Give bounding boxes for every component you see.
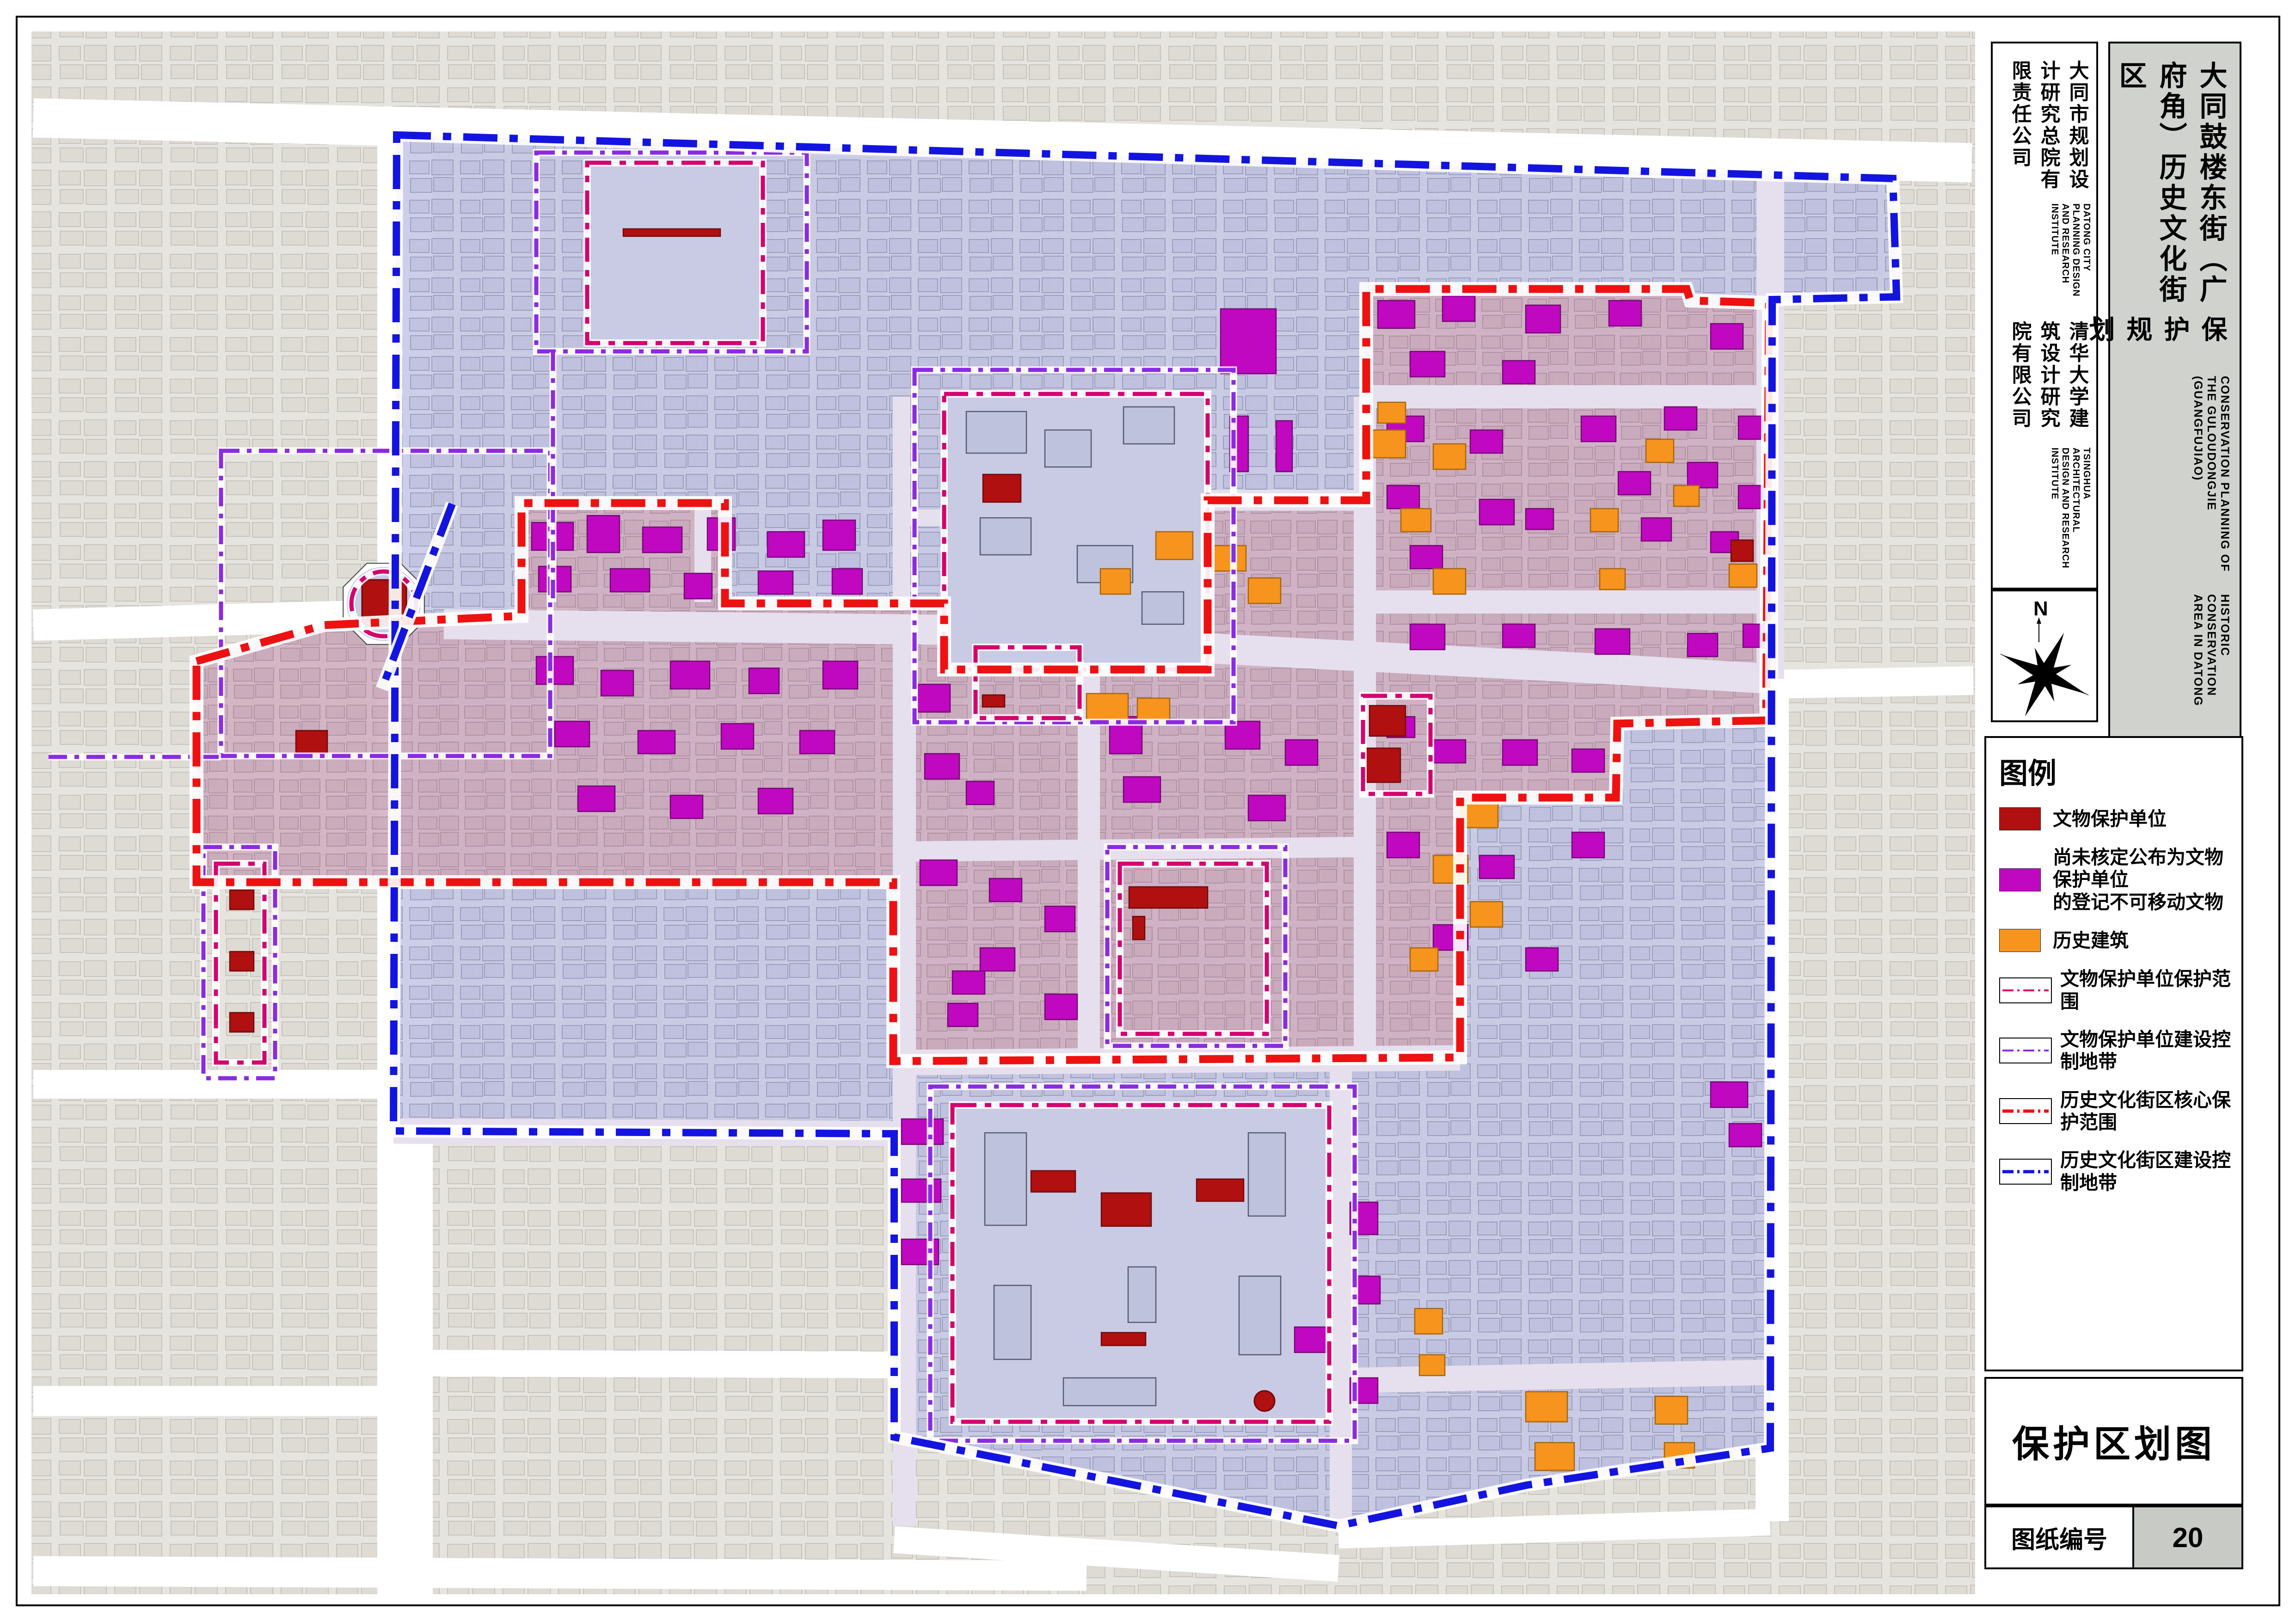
building-registered-relic bbox=[601, 670, 633, 696]
legend-item: 历史文化街区核心保护范围 bbox=[1999, 1089, 2241, 1134]
building-registered-relic bbox=[1618, 472, 1651, 495]
building-registered-relic bbox=[1248, 795, 1285, 821]
sheet-title-cn: 大同鼓楼东街（广府角）历史文化街区 bbox=[2125, 61, 2231, 316]
building-registered-relic bbox=[670, 795, 703, 818]
building-protected-relic bbox=[1101, 1333, 1146, 1346]
sheet-title-en-2: HISTORIC CONSERVATION AREA IN DATONG bbox=[2123, 594, 2231, 734]
building-registered-relic bbox=[587, 516, 620, 553]
building-registered-relic bbox=[721, 724, 754, 749]
legend-item: 历史文化街区建设控制地带 bbox=[1999, 1149, 2241, 1194]
building-historic bbox=[1646, 439, 1674, 462]
org-1-name-en: DATONG CITY PLANNING DESIGN AND RESEARCH… bbox=[2002, 203, 2092, 320]
building-registered-relic bbox=[1572, 749, 1604, 772]
building-registered-relic bbox=[555, 721, 589, 747]
building-registered-relic bbox=[1410, 351, 1445, 377]
building-protected-relic bbox=[1101, 1193, 1151, 1226]
legend-title: 图例 bbox=[1999, 750, 2241, 792]
building-registered-relic bbox=[902, 1119, 943, 1144]
building-registered-relic bbox=[1387, 832, 1419, 858]
building-historic bbox=[1415, 1309, 1443, 1334]
sheet-title-en-1: CONSERVATION PLANNING OF THE GULOUDONGJI… bbox=[2123, 376, 2231, 594]
building-protected-relic bbox=[983, 474, 1021, 502]
sheet-title-cn-2: 保护规划 bbox=[2126, 316, 2231, 376]
building-registered-relic bbox=[1221, 309, 1276, 374]
building-registered-relic bbox=[1355, 1276, 1380, 1304]
street bbox=[1770, 681, 1973, 684]
building-registered-relic bbox=[758, 788, 793, 814]
building-gray bbox=[1239, 1276, 1281, 1355]
legend-item: 历史建筑 bbox=[1999, 929, 2241, 952]
building-registered-relic bbox=[1503, 361, 1535, 384]
building-protected-relic bbox=[230, 952, 254, 971]
building-registered-relic bbox=[1480, 499, 1514, 525]
building-protected-relic bbox=[1366, 748, 1400, 782]
building-historic bbox=[1410, 948, 1438, 971]
building-gray bbox=[1123, 407, 1174, 444]
legend-item: 尚未核定公布为文物保护单位 的登记不可移动文物 bbox=[1999, 846, 2241, 913]
building-historic bbox=[1156, 532, 1193, 559]
building-gray bbox=[1063, 1378, 1156, 1406]
legend-item: 文物保护单位 bbox=[1999, 807, 2241, 830]
building-protected-relic bbox=[982, 695, 1005, 707]
sheet-title-panel: 大同鼓楼东街（广府角）历史文化街区 保护规划 CONSERVATION PLAN… bbox=[2108, 42, 2241, 754]
street bbox=[1616, 670, 1770, 679]
legend-label: 尚未核定公布为文物保护单位 的登记不可移动文物 bbox=[2053, 846, 2241, 913]
building-registered-relic bbox=[578, 786, 615, 811]
building-gray bbox=[1045, 430, 1091, 467]
building-protected-relic bbox=[230, 1013, 254, 1032]
building-historic bbox=[1248, 578, 1281, 603]
legend-item: 文物保护单位保护范围 bbox=[1999, 968, 2241, 1013]
building-registered-relic bbox=[1572, 832, 1604, 858]
building-gray bbox=[1142, 592, 1184, 624]
building-registered-relic bbox=[1526, 948, 1558, 971]
building-registered-relic bbox=[1276, 421, 1292, 472]
legend-item: 文物保护单位建设控制地带 bbox=[1999, 1028, 2241, 1073]
building-registered-relic bbox=[1711, 324, 1743, 349]
building-historic bbox=[1729, 564, 1757, 587]
building-protected-relic bbox=[230, 890, 254, 909]
building-historic bbox=[1433, 444, 1466, 469]
building-gray bbox=[1128, 1267, 1156, 1322]
building-registered-relic bbox=[1387, 485, 1419, 509]
legend-label: 历史文化街区建设控制地带 bbox=[2060, 1149, 2241, 1194]
building-registered-relic bbox=[1581, 416, 1616, 442]
drawing-title-panel: 保护区划图 bbox=[1984, 1377, 2243, 1505]
sheet-number-label: 图纸编号 bbox=[1986, 1507, 2134, 1567]
building-registered-relic bbox=[1711, 1082, 1748, 1107]
map-canvas bbox=[0, 0, 2296, 1622]
building-registered-relic bbox=[1123, 777, 1160, 802]
building-registered-relic bbox=[925, 754, 959, 779]
building-registered-relic bbox=[1729, 1124, 1762, 1147]
building-registered-relic bbox=[767, 532, 804, 557]
building-gray bbox=[994, 1285, 1031, 1359]
street bbox=[1338, 1522, 1770, 1535]
building-registered-relic bbox=[638, 731, 675, 754]
street bbox=[1208, 648, 1616, 670]
building-registered-relic bbox=[1503, 740, 1537, 765]
building-registered-relic bbox=[749, 668, 779, 694]
building-registered-relic bbox=[643, 527, 682, 553]
street bbox=[33, 1571, 1087, 1576]
legend-panel: 图例 文物保护单位尚未核定公布为文物保护单位 的登记不可移动文物历史建筑文物保护… bbox=[1984, 736, 2243, 1371]
building-registered-relic bbox=[1410, 624, 1445, 650]
building-historic bbox=[1369, 430, 1406, 458]
building-gray bbox=[966, 412, 1026, 453]
yanta-pagoda-dot bbox=[1254, 1391, 1275, 1411]
building-registered-relic bbox=[758, 571, 793, 594]
building-registered-relic bbox=[1410, 546, 1443, 569]
building-protected-relic bbox=[1731, 540, 1753, 561]
legend-swatch bbox=[1999, 807, 2041, 830]
legend-label: 历史建筑 bbox=[2053, 929, 2129, 952]
building-registered-relic bbox=[1503, 624, 1535, 647]
sheet-number-value: 20 bbox=[2134, 1507, 2241, 1567]
building-historic bbox=[1419, 1355, 1445, 1376]
building-registered-relic bbox=[800, 731, 835, 754]
sheet-number-row: 图纸编号 20 bbox=[1984, 1505, 2243, 1569]
building-registered-relic bbox=[823, 520, 855, 550]
building-registered-relic bbox=[684, 573, 712, 599]
building-historic bbox=[1674, 485, 1699, 506]
building-protected-relic bbox=[1031, 1171, 1075, 1192]
building-registered-relic bbox=[1378, 301, 1415, 328]
org-2-name-en: TSINGHUA ARCHITECTURAL DESIGN AND RESEAR… bbox=[2002, 448, 2092, 571]
building-registered-relic bbox=[1664, 407, 1697, 430]
legend-label: 历史文化街区核心保护范围 bbox=[2060, 1089, 2241, 1134]
legend-line-sample bbox=[1999, 1038, 2052, 1063]
building-gray bbox=[985, 1133, 1026, 1225]
building-registered-relic bbox=[1295, 1327, 1327, 1352]
building-registered-relic bbox=[1433, 740, 1466, 763]
org-1-name: 大同市规划设计研究总院有限责任公司 bbox=[2003, 60, 2092, 203]
building-registered-relic bbox=[1470, 430, 1503, 453]
street bbox=[444, 624, 943, 630]
building-registered-relic bbox=[832, 569, 862, 594]
building-registered-relic bbox=[1641, 518, 1671, 541]
building-registered-relic bbox=[920, 860, 957, 885]
legend-swatch bbox=[1999, 929, 2041, 952]
building-historic bbox=[1535, 1443, 1574, 1470]
legend-line-sample bbox=[1999, 1159, 2052, 1185]
building-registered-relic bbox=[980, 948, 1015, 971]
building-registered-relic bbox=[1595, 629, 1630, 654]
legend-line-sample bbox=[1999, 977, 2052, 1003]
legend-label: 文物保护单位保护范围 bbox=[2060, 968, 2241, 1013]
building-historic bbox=[1655, 1396, 1688, 1424]
legend-label: 文物保护单位建设控制地带 bbox=[2060, 1028, 2241, 1073]
building-protected-relic bbox=[1197, 1179, 1244, 1201]
building-historic bbox=[1590, 509, 1618, 532]
map-content bbox=[31, 31, 1975, 1594]
north-compass-panel: N bbox=[1991, 590, 2098, 722]
building-registered-relic bbox=[1609, 301, 1641, 326]
building-registered-relic bbox=[823, 661, 858, 689]
building-registered-relic bbox=[536, 657, 573, 684]
building-gray bbox=[1248, 1133, 1285, 1216]
building-registered-relic bbox=[902, 1179, 941, 1202]
building-protected-relic bbox=[623, 229, 720, 236]
building-historic bbox=[1087, 694, 1128, 721]
building-registered-relic bbox=[1443, 296, 1475, 321]
building-registered-relic bbox=[1480, 855, 1514, 879]
building-protected-relic bbox=[1133, 916, 1145, 940]
building-registered-relic bbox=[966, 781, 994, 805]
building-registered-relic bbox=[1045, 906, 1075, 932]
building-historic bbox=[1526, 1392, 1567, 1422]
building-registered-relic bbox=[989, 879, 1022, 902]
building-historic bbox=[1211, 546, 1246, 571]
building-historic bbox=[1100, 569, 1130, 594]
building-historic bbox=[1470, 902, 1503, 927]
building-registered-relic bbox=[1045, 994, 1077, 1020]
org-2-name: 清华大学建筑设计研究院有限公司 bbox=[2011, 321, 2092, 448]
legend-rows: 文物保护单位尚未核定公布为文物保护单位 的登记不可移动文物历史建筑文物保护单位保… bbox=[1999, 807, 2241, 1194]
building-registered-relic bbox=[1285, 740, 1318, 765]
north-label: N bbox=[2033, 597, 2048, 620]
temple-compound bbox=[587, 163, 763, 343]
street bbox=[1341, 1372, 1770, 1381]
building-registered-relic bbox=[1688, 633, 1718, 657]
legend-label: 文物保护单位 bbox=[2053, 808, 2167, 830]
building-registered-relic bbox=[610, 569, 650, 592]
building-registered-relic bbox=[952, 971, 985, 994]
legend-swatch bbox=[1999, 868, 2041, 891]
building-historic bbox=[1378, 402, 1406, 423]
legend-line-sample bbox=[1999, 1098, 2052, 1124]
building-gray bbox=[980, 518, 1031, 555]
street bbox=[406, 1363, 894, 1365]
drawing-title: 保护区划图 bbox=[2012, 1414, 2216, 1468]
building-protected-relic bbox=[1129, 887, 1208, 908]
building-registered-relic bbox=[1526, 509, 1553, 529]
plan-sheet: { "titleblock": { "title_cn": "大同鼓楼东街（广府… bbox=[0, 0, 2296, 1622]
building-registered-relic bbox=[670, 661, 710, 689]
building-historic bbox=[1600, 569, 1625, 590]
building-registered-relic bbox=[918, 684, 950, 712]
building-historic bbox=[1433, 569, 1466, 594]
building-registered-relic bbox=[948, 1003, 978, 1026]
building-registered-relic bbox=[1688, 462, 1718, 488]
building-registered-relic bbox=[1526, 305, 1560, 333]
building-protected-relic bbox=[1369, 706, 1406, 736]
building-historic bbox=[1401, 509, 1431, 532]
compass-rose: N bbox=[1993, 591, 2096, 720]
